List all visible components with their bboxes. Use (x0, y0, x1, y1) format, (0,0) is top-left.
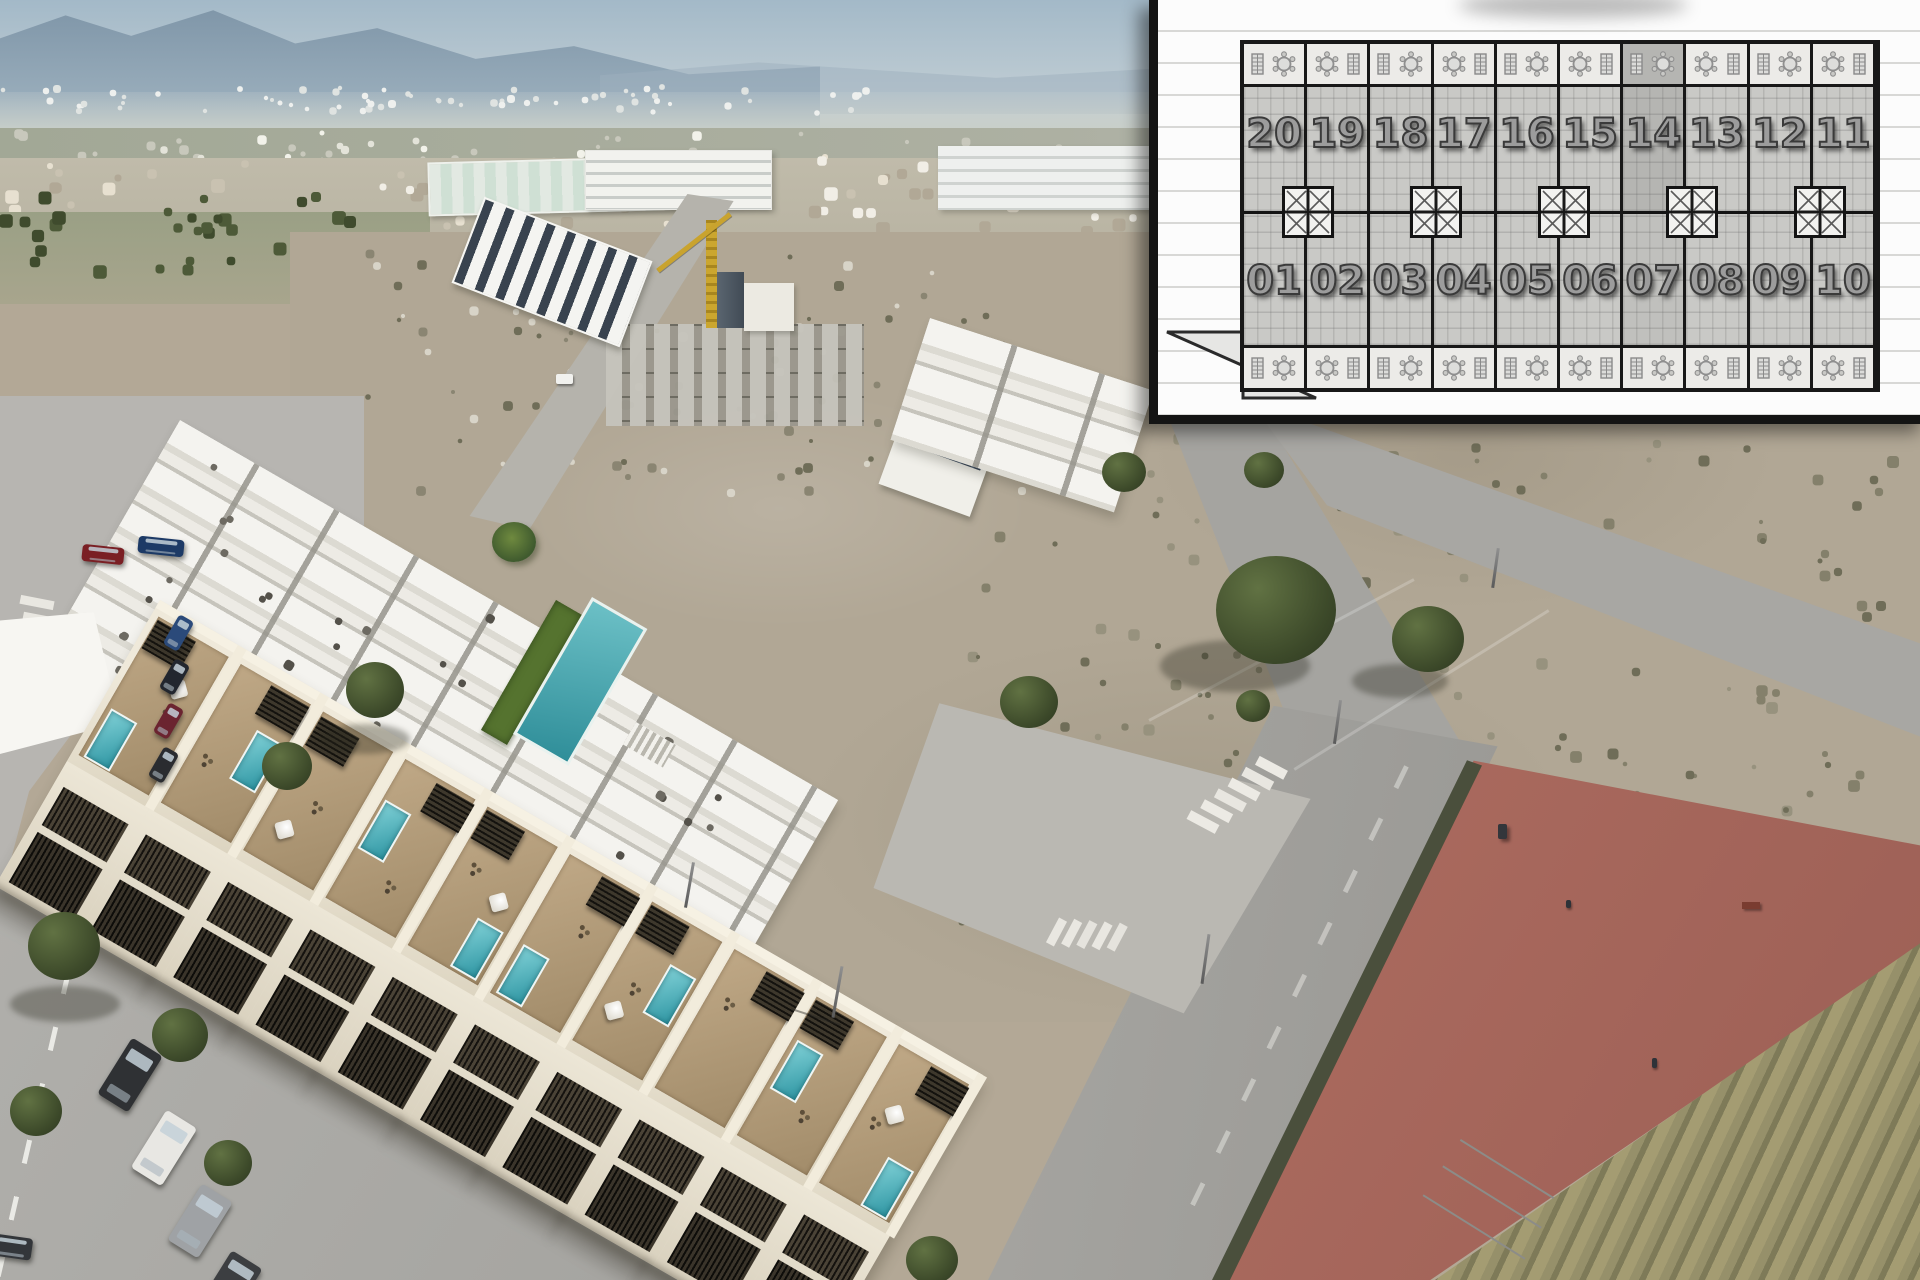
apartment-block-right (938, 146, 1153, 210)
concrete-frame-construction (606, 324, 864, 426)
roof-terrace-cell (1686, 345, 1746, 388)
roof-terrace-cell (1307, 345, 1367, 388)
table-with-chairs-icon (1650, 355, 1676, 381)
table-with-chairs-icon (1567, 51, 1593, 77)
speckle-town-rooftops (0, 156, 2, 158)
elevator-shaft-x-icon (1794, 186, 1846, 238)
stairs-icon (1727, 53, 1740, 75)
unit-number: 20 (1244, 111, 1304, 157)
tree (1000, 676, 1058, 728)
roof-terrace-cell (1623, 44, 1683, 87)
tree (906, 1236, 958, 1280)
stairs-icon (1757, 53, 1770, 75)
elevator-shaft-x-icon (1666, 186, 1718, 238)
pedestrian (1652, 1058, 1657, 1068)
roof-terrace-cell (1497, 44, 1557, 87)
roof-terrace-cell (1370, 345, 1430, 388)
unit-number: 01 (1244, 258, 1304, 304)
large-tree (1216, 556, 1336, 664)
unit-number: 17 (1434, 111, 1494, 157)
elevator-shaft-x-icon (1282, 186, 1334, 238)
unit-number: 07 (1623, 258, 1683, 304)
speckle-hillside-village (0, 86, 2, 88)
pedestrian-2 (1566, 900, 1571, 908)
crane-mast (706, 220, 717, 328)
roof-terrace-cell (1623, 345, 1683, 388)
stairs-icon (1251, 357, 1264, 379)
floor-plan-grid: 2001190218031704160515061407130812091110 (1240, 40, 1880, 392)
tree (152, 1008, 208, 1062)
table-with-chairs-icon (1820, 355, 1846, 381)
table-with-chairs-icon (1441, 51, 1467, 77)
stairs-icon (1727, 357, 1740, 379)
stairs-icon (1347, 53, 1360, 75)
elevator-shaft-x-icon (1410, 186, 1462, 238)
table-with-chairs-icon (1314, 51, 1340, 77)
unit-number: 04 (1434, 258, 1494, 304)
stairs-icon (1600, 357, 1613, 379)
roof-terrace-cell (1244, 345, 1304, 388)
stairs-icon (1474, 357, 1487, 379)
unit-number: 05 (1497, 258, 1557, 304)
tree (10, 1086, 62, 1136)
roof-terrace-cell (1560, 345, 1620, 388)
stairs-icon (1474, 53, 1487, 75)
unit-number: 06 (1560, 258, 1620, 304)
stairs-icon (1757, 357, 1770, 379)
table-with-chairs-icon (1524, 51, 1550, 77)
tree (1102, 452, 1146, 492)
tree-shadow (320, 724, 410, 754)
roof-terrace-cell (1750, 345, 1810, 388)
unit-number: 03 (1370, 258, 1430, 304)
unit-number: 11 (1813, 111, 1873, 157)
palm-tree (492, 522, 536, 562)
table-with-chairs-icon (1271, 51, 1297, 77)
roof-terrace-cell (1434, 44, 1494, 87)
motorbike (1498, 824, 1507, 839)
unit-number: 15 (1560, 111, 1620, 157)
bench (1742, 902, 1760, 909)
table-with-chairs-icon (1271, 355, 1297, 381)
roof-terrace-cell (1686, 44, 1746, 87)
aerial-marketing-image: 2001190218031704160515061407130812091110 (0, 0, 1920, 1280)
table-with-chairs-icon (1777, 51, 1803, 77)
roof-terrace-cell (1813, 345, 1873, 388)
stairs-icon (1853, 357, 1866, 379)
roof-terrace-cell (1750, 44, 1810, 87)
tree (1236, 690, 1270, 722)
stairs-icon (1347, 357, 1360, 379)
roof-terrace-cell (1497, 345, 1557, 388)
stairs-icon (1630, 53, 1643, 75)
unit-number: 08 (1686, 258, 1746, 304)
street-tree (346, 662, 404, 718)
unit-number: 14 (1623, 111, 1683, 157)
stairs-icon (1377, 357, 1390, 379)
tree (1244, 452, 1284, 488)
speckle-doors (183, 434, 186, 437)
unit-number: 02 (1307, 258, 1367, 304)
speckle-distant-buildings (0, 132, 2, 134)
roof-terrace-cell (1244, 44, 1304, 87)
stairs-icon (1251, 53, 1264, 75)
speckle-orchard-trees (4, 196, 6, 198)
unit-number: 16 (1497, 111, 1557, 157)
tree (204, 1140, 252, 1186)
table-with-chairs-icon (1398, 51, 1424, 77)
unit-number: 12 (1750, 111, 1810, 157)
site-plan-inset: 2001190218031704160515061407130812091110 (1149, 0, 1920, 424)
stairs-icon (1600, 53, 1613, 75)
roof-terrace-cell (1813, 44, 1873, 87)
unit-number: 13 (1686, 111, 1746, 157)
apartment-block (585, 150, 772, 210)
table-with-chairs-icon (1693, 355, 1719, 381)
table-with-chairs-icon (1820, 51, 1846, 77)
white-house (744, 283, 794, 331)
tree-shadow (10, 986, 120, 1022)
roof-terrace-cell (1370, 44, 1430, 87)
speckle-scrub-mid (360, 252, 362, 254)
stairs-icon (1853, 53, 1866, 75)
table-with-chairs-icon (1398, 355, 1424, 381)
white-van (556, 374, 573, 384)
unit-number: 19 (1307, 111, 1367, 157)
roof-terrace-cell (1560, 44, 1620, 87)
table-with-chairs-icon (1441, 355, 1467, 381)
stairs-icon (1630, 357, 1643, 379)
roof-terrace-cell (1434, 345, 1494, 388)
unit-number: 10 (1813, 258, 1873, 304)
table-with-chairs-icon (1693, 51, 1719, 77)
roof-terrace-cell (1307, 44, 1367, 87)
street-tree (262, 742, 312, 790)
edge-car (0, 1233, 33, 1260)
table-with-chairs-icon (1567, 355, 1593, 381)
elevator-shaft-x-icon (1538, 186, 1590, 238)
tree (28, 912, 100, 980)
stairs-icon (1377, 53, 1390, 75)
tree (1392, 606, 1464, 672)
stairs-icon (1504, 53, 1517, 75)
construction-core (717, 272, 744, 328)
unit-number: 09 (1750, 258, 1810, 304)
table-with-chairs-icon (1777, 355, 1803, 381)
stairs-icon (1504, 357, 1517, 379)
unit-number: 18 (1370, 111, 1430, 157)
table-with-chairs-icon (1314, 355, 1340, 381)
table-with-chairs-icon (1650, 51, 1676, 77)
table-with-chairs-icon (1524, 355, 1550, 381)
